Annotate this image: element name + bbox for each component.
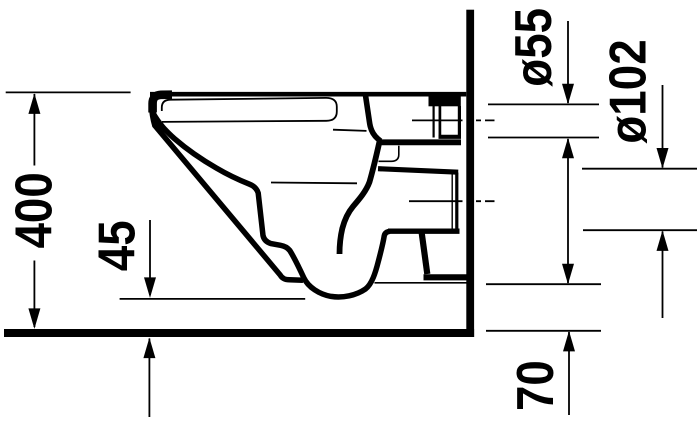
svg-text:ø55: ø55 (505, 8, 562, 87)
svg-text:400: 400 (6, 172, 63, 248)
svg-text:ø102: ø102 (600, 39, 657, 143)
svg-text:70: 70 (507, 360, 564, 411)
svg-text:45: 45 (89, 220, 146, 271)
